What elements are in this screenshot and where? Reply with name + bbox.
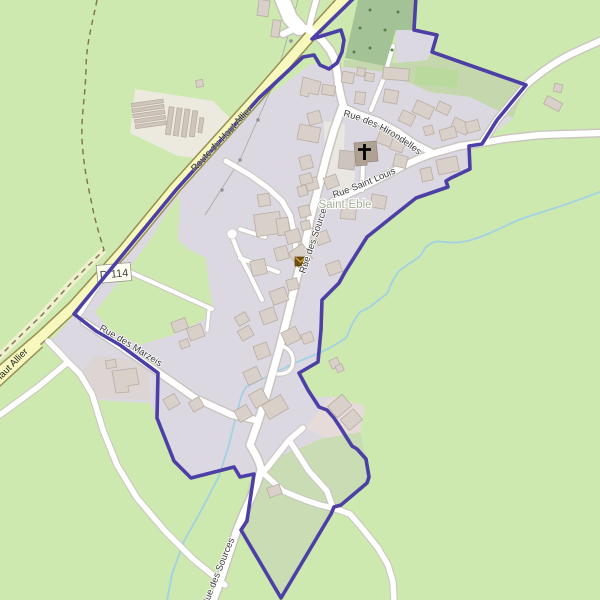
svg-text:Saint-Eble: Saint-Eble	[318, 199, 371, 211]
